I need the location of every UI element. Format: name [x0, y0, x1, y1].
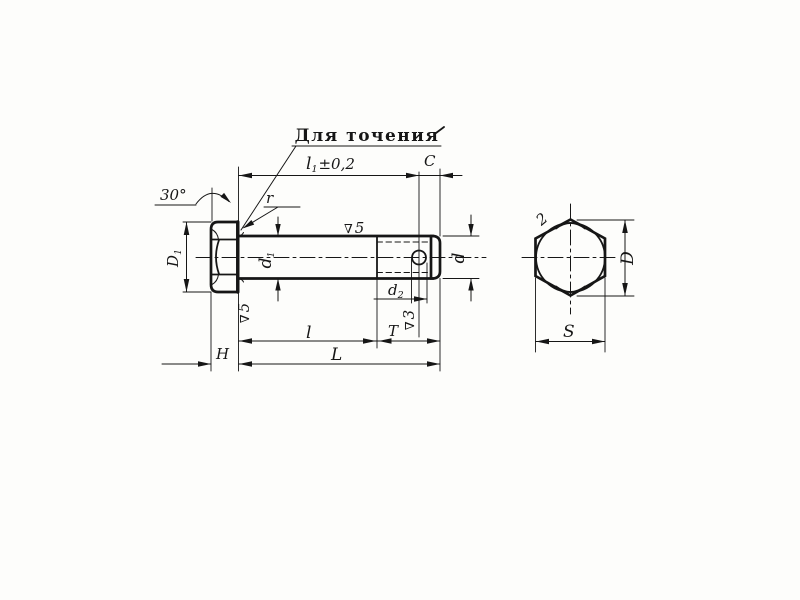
title-annotation: Для точения [241, 126, 444, 230]
finish-thread: ∇3 [400, 310, 418, 330]
head-bottom-facet-arc [212, 275, 219, 285]
D1-label: D1 [164, 249, 184, 268]
D-arrow-top [622, 220, 628, 233]
hex-head-end-view: 2 [532, 209, 605, 295]
angle-label: 30° [160, 186, 187, 204]
d-arrow-bottom [468, 279, 473, 291]
S-arrow-left [536, 339, 549, 345]
H-arrowhead [198, 361, 211, 367]
chamfer-note: 2 [532, 209, 552, 230]
title-text: Для точения [295, 126, 440, 146]
L-arrow-right [427, 361, 440, 367]
hex-bolt-engineering-drawing: Для точения 30° r l1±0,2 C [0, 0, 800, 600]
end-view: 2 D S [522, 204, 638, 352]
C-arrow-right [440, 173, 453, 179]
finish-head-face: ∇5 [235, 303, 253, 323]
S-arrow-right [592, 339, 605, 345]
main-view: Для точения 30° r l1±0,2 C [155, 126, 486, 371]
T-arrow-right [427, 338, 440, 344]
angle-arrowhead [220, 193, 232, 205]
r-label: r [266, 189, 274, 207]
head-top-facet-arc [212, 230, 219, 240]
dimension-angle-30: 30° [155, 186, 233, 205]
C-label: C [424, 152, 436, 170]
drawing-page: Для точения 30° r l1±0,2 C [0, 0, 800, 600]
dimension-d1: d1 [256, 217, 281, 301]
L-label: L [330, 345, 342, 365]
D-arrow-bottom [622, 283, 628, 296]
l1-label: l1±0,2 [306, 154, 355, 175]
D1-arrow-top [184, 222, 190, 235]
D1-arrow-bottom [184, 279, 190, 292]
l-arrow-left [239, 338, 252, 344]
dimension-D: D [618, 220, 638, 296]
l-arrow-right [363, 338, 376, 344]
T-label: T [388, 322, 399, 340]
l1-arrow-right [406, 173, 419, 179]
dimension-l1-and-C: l1±0,2 C [239, 152, 463, 178]
d2-arrowhead [414, 296, 427, 302]
d1-label: d1 [256, 252, 277, 269]
l1-arrow-left [239, 173, 252, 179]
d-arrow-top [468, 224, 473, 236]
dimension-D1: D1 [164, 222, 189, 292]
d1-arrow-top [275, 224, 280, 236]
title-leader [241, 146, 296, 230]
H-label: H [215, 345, 230, 363]
D-label: D [618, 251, 638, 266]
dimension-H-L: H L [162, 345, 440, 367]
finish-shank: ∇5 [344, 219, 364, 237]
dimension-r: r [241, 189, 300, 231]
l-label: l [306, 323, 311, 343]
d2-label: d2 [388, 281, 404, 301]
dimension-S: S [536, 322, 606, 344]
S-label: S [563, 322, 575, 342]
L-arrow-left [239, 361, 252, 367]
d1-arrow-bottom [275, 279, 280, 291]
d-label: d [449, 252, 469, 263]
r-arrowhead [241, 220, 254, 231]
